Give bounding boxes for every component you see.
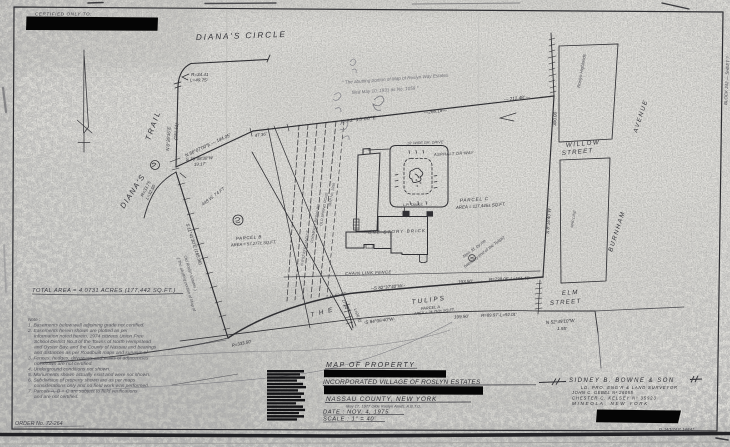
svg-text:6. Subdivision of property sho: 6. Subdivision of property shown are as … (28, 378, 136, 384)
svg-text:CHESTER C. KELSEY Nº 35923: CHESTER C. KELSEY Nº 35923 (572, 396, 657, 401)
svg-text:R=34.41: R=34.41 (191, 72, 209, 77)
svg-text:4. Underground conditions not: 4. Underground conditions not shown. (28, 367, 110, 373)
svg-text:19.17': 19.17' (194, 161, 206, 167)
svg-text:MINEOLA, NEW YORK: MINEOLA, NEW YORK (572, 401, 649, 406)
svg-text:not shown are not certified.: not shown are not certified. (34, 361, 93, 367)
svg-text:1. Basements below wall adjoin: 1. Basements below wall adjoining grade … (28, 323, 145, 329)
svg-text:May 17, 1977 Olde Roslyn Amds.: May 17, 1977 Olde Roslyn Amds. A.B.T.O. (346, 404, 421, 409)
svg-text:information noted herein, 1974: information noted herein, 1974 citizens … (34, 334, 144, 340)
svg-text:ORDER No. 72-264: ORDER No. 72-264 (15, 421, 63, 427)
svg-text:ELM: ELM (562, 289, 579, 297)
svg-text:D. 14/1/74 P. 144/47: D. 14/1/74 P. 144/47 (659, 427, 695, 432)
svg-text:Note :: Note : (28, 317, 41, 322)
svg-text:and are not certified.: and are not certified. (34, 394, 79, 400)
svg-text:CERTIFIED ONLY TO:: CERTIFIED ONLY TO: (35, 12, 92, 17)
svg-text:199.90': 199.90' (454, 314, 469, 320)
svg-text:L.P. TANKS: L.P. TANKS (403, 203, 423, 207)
svg-text:and distances as per Roadbuilt: and distances as per Roadbuilt maps and … (34, 350, 148, 356)
svg-text:considerations only and no fie: considerations only and no field work wa… (34, 383, 149, 389)
svg-text:TOTAL AREA = 4.0731 ACRES (177: TOTAL AREA = 4.0731 ACRES (177,442 SQ.FT… (32, 288, 176, 294)
svg-text:193.90': 193.90' (458, 279, 473, 285)
svg-text:SIDNEY B. BOWNE & SON: SIDNEY B. BOWNE & SON (569, 378, 675, 384)
svg-text:7. Parcels A, B + C are subje: 7. Parcels A, B + C are subject to field… (28, 389, 138, 395)
svg-text:L=49.75': L=49.75' (190, 78, 208, 83)
svg-text:School District No.3 of the To: School District No.3 of the Towns of Nor… (34, 339, 151, 345)
svg-text:JOHN C. GEBEL Nº 26055: JOHN C. GEBEL Nº 26055 (571, 390, 633, 395)
svg-text:2. Easements herein shown are: 2. Easements herein shown are plotted as… (27, 328, 128, 334)
svg-text:1.55': 1.55' (557, 326, 567, 331)
svg-text:300.00: 300.00 (552, 111, 558, 126)
svg-text:3. Fences, hedges, driveways a: 3. Fences, hedges, driveways and walks o… (28, 356, 149, 362)
svg-text:and Oyster Bay, and the County: and Oyster Bay, and the County of Nassau… (34, 345, 157, 351)
svg-text:5. Monuments shown actually ex: 5. Monuments shown actually exist and we… (28, 372, 150, 378)
